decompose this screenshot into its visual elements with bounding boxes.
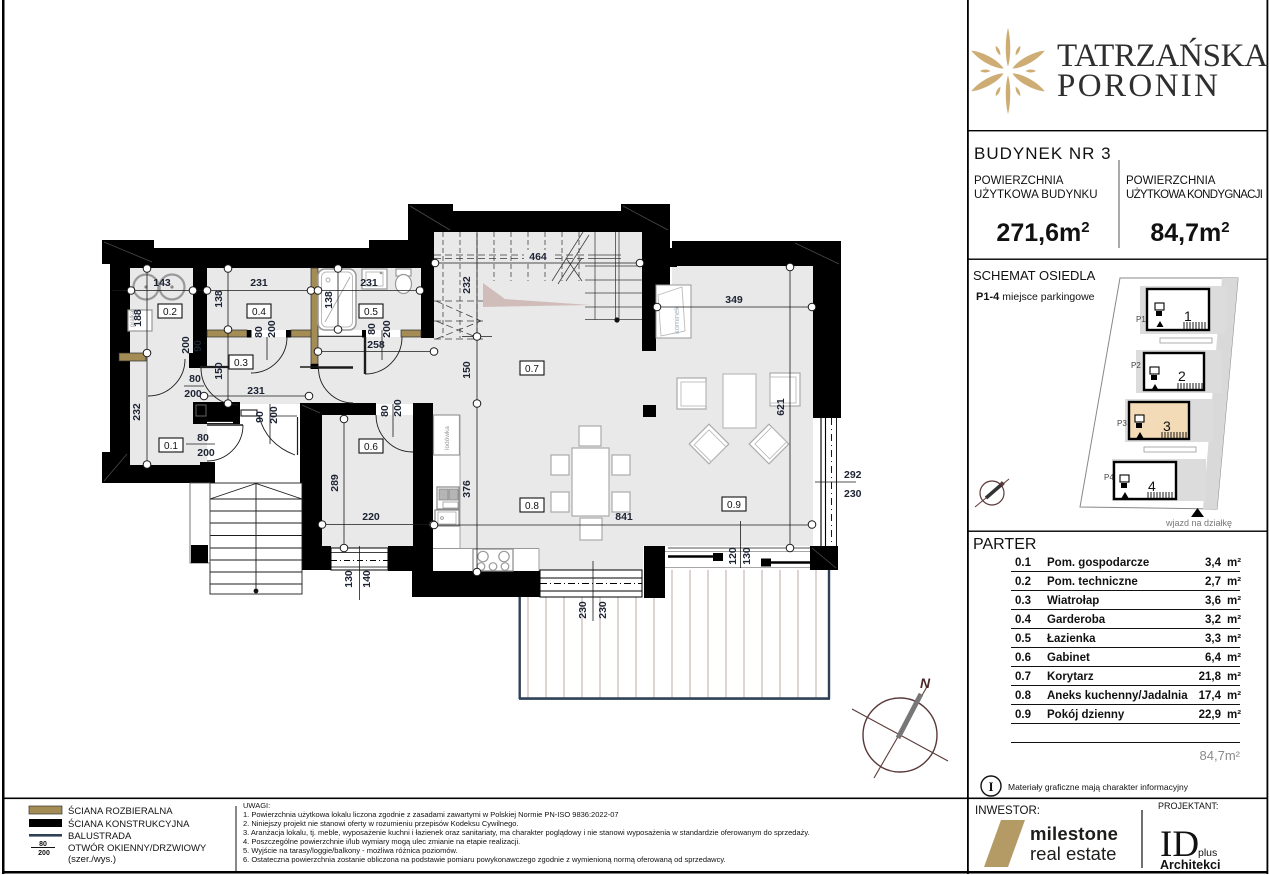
svg-text:5. Wyjście na tarasy/loggie/ba: 5. Wyjście na tarasy/loggie/balkony - mo… (243, 846, 458, 855)
svg-text:271,6m2: 271,6m2 (996, 219, 1089, 247)
svg-text:143: 143 (153, 277, 171, 289)
svg-text:POWIERZCHNIA: POWIERZCHNIA (1126, 175, 1216, 187)
svg-text:349: 349 (725, 294, 743, 306)
svg-text:464: 464 (529, 251, 547, 263)
svg-text:0.4: 0.4 (1015, 614, 1032, 626)
svg-text:188: 188 (132, 309, 144, 327)
svg-text:0.7: 0.7 (525, 364, 539, 375)
svg-text:UŻYTKOWA BUDYNKU: UŻYTKOWA BUDYNKU (974, 188, 1098, 201)
svg-text:m²: m² (1227, 671, 1241, 683)
svg-text:220: 220 (362, 511, 380, 523)
svg-text:PROJEKTANT:: PROJEKTANT: (1158, 801, 1218, 811)
svg-text:200: 200 (381, 320, 393, 338)
svg-text:3,3: 3,3 (1205, 633, 1221, 645)
svg-text:80: 80 (253, 326, 265, 338)
svg-text:200: 200 (197, 447, 215, 459)
svg-text:Garderoba: Garderoba (1047, 614, 1106, 626)
svg-text:Korytarz: Korytarz (1047, 671, 1094, 683)
svg-text:841: 841 (615, 511, 633, 523)
svg-text:P3: P3 (1117, 419, 1127, 428)
svg-text:SCHEMAT OSIEDLA: SCHEMAT OSIEDLA (973, 268, 1096, 283)
svg-text:milestone: milestone (1030, 823, 1118, 844)
svg-text:m²: m² (1227, 557, 1241, 569)
svg-text:0.2: 0.2 (163, 307, 177, 318)
svg-text:0.5: 0.5 (1015, 633, 1032, 645)
svg-text:21,8: 21,8 (1199, 671, 1222, 683)
svg-text:200: 200 (268, 406, 280, 424)
svg-text:ŚCIANA ROZBIERALNA: ŚCIANA ROZBIERALNA (68, 805, 173, 817)
svg-text:22,9: 22,9 (1199, 709, 1221, 721)
svg-text:230: 230 (597, 601, 609, 619)
svg-text:150: 150 (213, 362, 225, 380)
svg-text:2,7: 2,7 (1205, 576, 1221, 588)
svg-text:200: 200 (184, 388, 202, 400)
svg-text:80: 80 (379, 405, 391, 417)
svg-text:(szer./wys.): (szer./wys.) (68, 854, 116, 865)
svg-text:real estate: real estate (1030, 843, 1116, 864)
svg-text:lodówka: lodówka (444, 426, 451, 450)
svg-text:80: 80 (189, 373, 201, 385)
svg-text:258: 258 (367, 339, 385, 351)
svg-text:6. Ostateczna powierzchnia zos: 6. Ostateczna powierzchnia zostanie obli… (243, 855, 726, 864)
svg-text:Gabinet: Gabinet (1047, 652, 1090, 664)
svg-text:ŚCIANA KONSTRUKCYJNA: ŚCIANA KONSTRUKCYJNA (68, 818, 190, 830)
svg-text:Aneks kuchenny/Jadalnia: Aneks kuchenny/Jadalnia (1047, 690, 1188, 702)
svg-text:m²: m² (1227, 690, 1241, 702)
svg-text:0.6: 0.6 (364, 442, 378, 453)
svg-text:231: 231 (247, 385, 265, 397)
svg-text:UWAGI:: UWAGI: (243, 801, 270, 810)
svg-text:m²: m² (1227, 614, 1241, 626)
svg-text:90: 90 (192, 340, 204, 352)
svg-text:Łazienka: Łazienka (1047, 633, 1096, 645)
svg-text:m²: m² (1227, 576, 1241, 588)
svg-text:UŻYTKOWA KONDYGNACJI: UŻYTKOWA KONDYGNACJI (1126, 188, 1263, 201)
svg-text:POWIERZCHNIA: POWIERZCHNIA (974, 175, 1064, 187)
svg-text:0.6: 0.6 (1015, 652, 1031, 664)
svg-text:P1-4 miejsce parkingowe: P1-4 miejsce parkingowe (976, 291, 1095, 303)
svg-text:200: 200 (38, 850, 50, 857)
svg-text:I: I (988, 779, 993, 794)
svg-text:0.2: 0.2 (1015, 576, 1031, 588)
svg-text:232: 232 (131, 403, 143, 421)
svg-text:3. Aranżacja lokalu, tj. meble: 3. Aranżacja lokalu, tj. meble, wyposaże… (243, 828, 810, 837)
svg-text:80: 80 (366, 323, 378, 335)
svg-text:138: 138 (213, 290, 225, 308)
svg-text:3: 3 (1163, 418, 1171, 434)
svg-text:0.4: 0.4 (252, 307, 266, 318)
svg-text:4: 4 (1148, 478, 1156, 494)
svg-text:140: 140 (361, 570, 373, 588)
svg-text:0.8: 0.8 (525, 501, 539, 512)
svg-text:m²: m² (1227, 709, 1241, 721)
svg-text:INWESTOR:: INWESTOR: (975, 805, 1040, 817)
svg-text:3,4: 3,4 (1205, 557, 1222, 569)
svg-text:BALUSTRADA: BALUSTRADA (68, 831, 132, 842)
svg-text:m²: m² (1227, 633, 1241, 645)
svg-text:3,6: 3,6 (1205, 595, 1221, 607)
svg-text:N: N (920, 675, 931, 691)
svg-text:289: 289 (329, 474, 341, 492)
svg-text:4. Poszczególne powierzchnie i: 4. Poszczególne powierzchnie i/lub wymia… (243, 837, 520, 846)
svg-text:Materiały graficzne mają chara: Materiały graficzne mają charakter infor… (1008, 782, 1189, 792)
svg-text:0.5: 0.5 (364, 307, 378, 318)
svg-text:292: 292 (844, 469, 862, 481)
svg-text:0.3: 0.3 (1015, 595, 1031, 607)
svg-text:P1: P1 (1136, 315, 1146, 324)
svg-text:OTWÓR OKIENNY/DRZWIOWY: OTWÓR OKIENNY/DRZWIOWY (68, 843, 207, 854)
svg-text:231: 231 (360, 277, 378, 289)
svg-text:90: 90 (254, 411, 266, 423)
svg-text:m²: m² (1227, 595, 1241, 607)
svg-text:84,7m2: 84,7m2 (1150, 219, 1229, 247)
svg-text:1. Powierzchnia użytkowa lokal: 1. Powierzchnia użytkowa lokalu liczona … (243, 810, 619, 819)
svg-text:150: 150 (461, 361, 473, 379)
svg-text:Wiatrołap: Wiatrołap (1047, 595, 1099, 607)
svg-text:Pom. techniczne: Pom. techniczne (1047, 576, 1138, 588)
svg-text:230: 230 (577, 601, 589, 619)
svg-text:80: 80 (39, 841, 47, 848)
svg-text:PARTER: PARTER (973, 536, 1036, 553)
svg-text:0.7: 0.7 (1015, 671, 1031, 683)
svg-text:200: 200 (180, 336, 192, 354)
svg-text:200: 200 (392, 399, 404, 417)
svg-text:0.1: 0.1 (164, 441, 178, 452)
svg-text:621: 621 (775, 398, 787, 416)
svg-text:232: 232 (461, 276, 473, 294)
svg-text:2. Niniejszy projekt nie stano: 2. Niniejszy projekt nie stanowi oferty … (243, 819, 519, 828)
svg-text:0.9: 0.9 (727, 500, 741, 511)
svg-text:130: 130 (343, 570, 355, 588)
svg-text:Pokój dzienny: Pokój dzienny (1047, 709, 1125, 721)
svg-text:0.3: 0.3 (234, 358, 248, 369)
svg-text:0.8: 0.8 (1015, 690, 1032, 702)
svg-text:1: 1 (1184, 308, 1192, 324)
svg-text:PORONIN: PORONIN (1057, 68, 1218, 104)
svg-text:wjazd na działkę: wjazd na działkę (1165, 518, 1232, 528)
svg-text:200: 200 (266, 320, 278, 338)
svg-text:17,4: 17,4 (1199, 690, 1222, 702)
svg-text:120: 120 (727, 547, 739, 565)
svg-text:3,2: 3,2 (1205, 614, 1221, 626)
svg-text:230: 230 (844, 488, 862, 500)
svg-text:138: 138 (323, 291, 335, 309)
svg-text:P2: P2 (1131, 361, 1141, 370)
svg-text:P4: P4 (1104, 473, 1114, 482)
svg-text:m²: m² (1227, 652, 1241, 664)
svg-text:kominek: kominek (672, 306, 681, 334)
svg-text:Architekci: Architekci (1160, 858, 1220, 872)
svg-text:84,7m²: 84,7m² (1200, 748, 1241, 763)
svg-text:376: 376 (461, 480, 473, 498)
svg-text:0.1: 0.1 (1015, 557, 1032, 569)
svg-text:BUDYNEK NR 3: BUDYNEK NR 3 (974, 144, 1112, 163)
svg-text:0.9: 0.9 (1015, 709, 1031, 721)
svg-text:80: 80 (197, 432, 209, 444)
svg-text:231: 231 (250, 277, 268, 289)
svg-text:Pom. gospodarcze: Pom. gospodarcze (1047, 557, 1149, 569)
svg-text:2: 2 (1178, 368, 1186, 384)
svg-text:130: 130 (741, 547, 753, 565)
svg-text:6,4: 6,4 (1205, 652, 1222, 664)
